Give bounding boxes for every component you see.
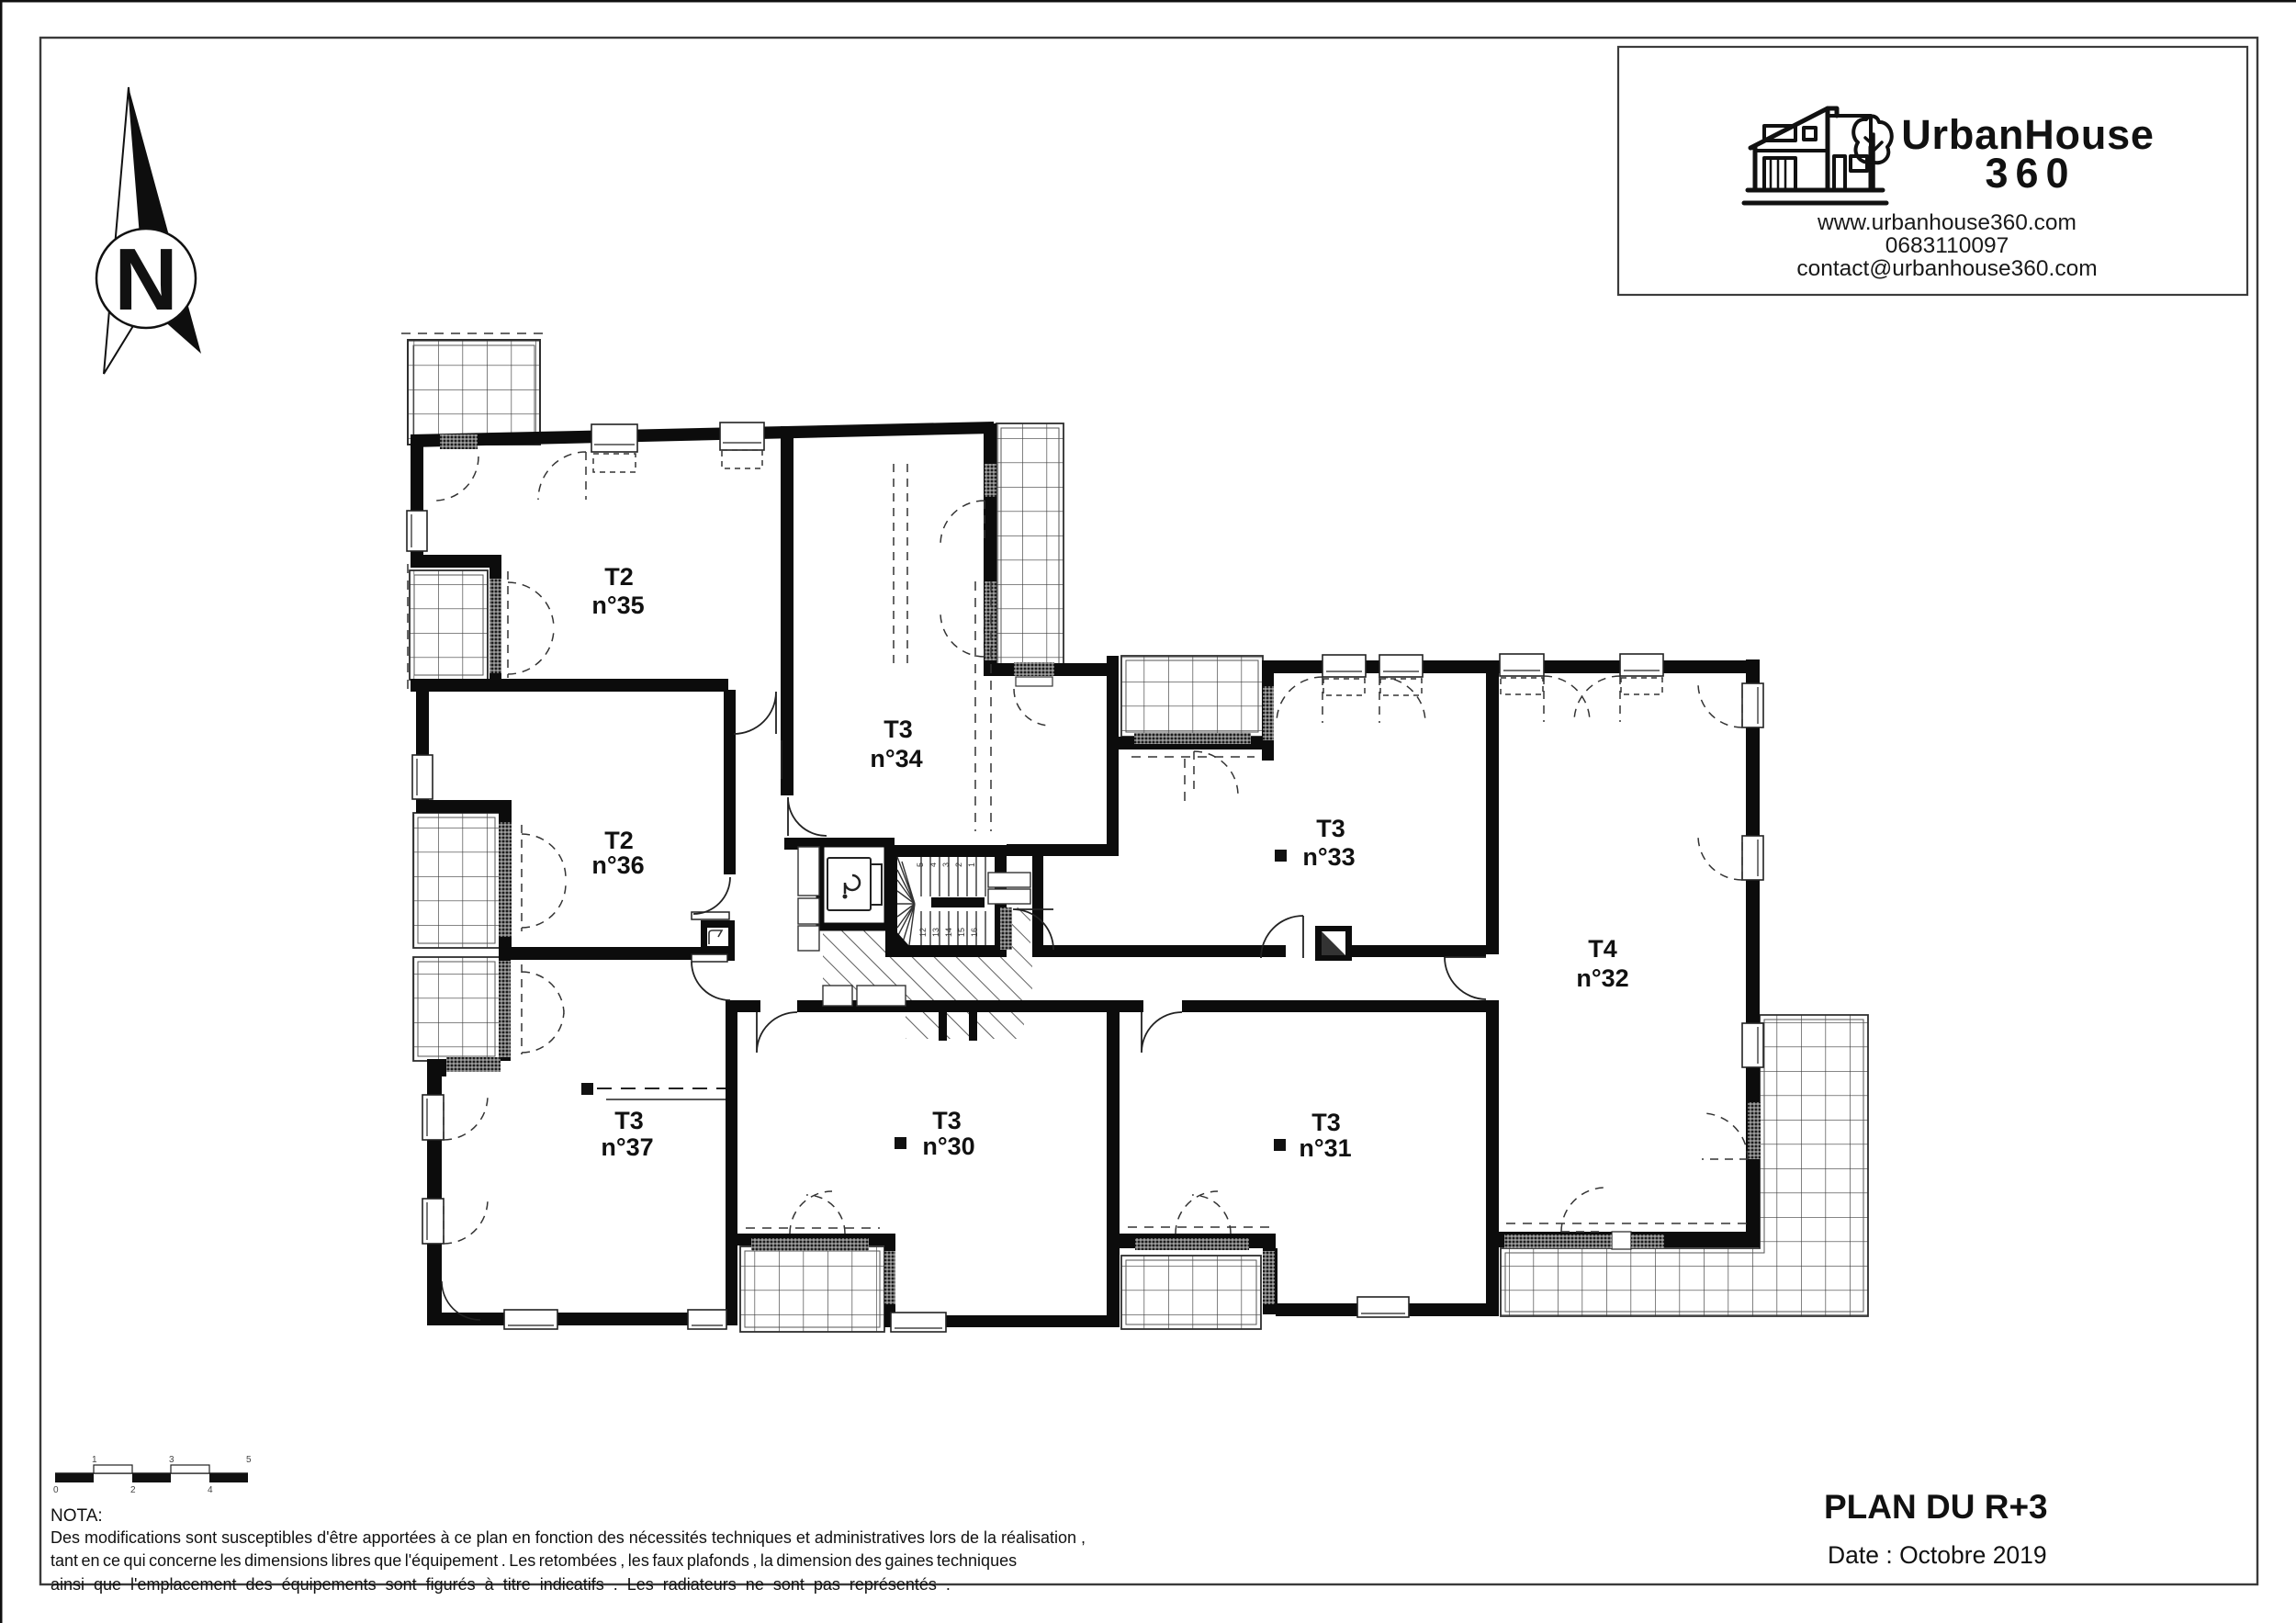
svg-text:n°36: n°36 xyxy=(591,851,644,879)
svg-text:16: 16 xyxy=(970,928,979,937)
svg-text:n°30: n°30 xyxy=(922,1133,974,1160)
svg-text:T3: T3 xyxy=(1311,1109,1341,1136)
svg-text:www.urbanhouse360.com: www.urbanhouse360.com xyxy=(1817,210,2077,235)
svg-text:3: 3 xyxy=(941,862,951,867)
svg-text:contact@urbanhouse360.com: contact@urbanhouse360.com xyxy=(1796,256,2097,281)
svg-text:n°35: n°35 xyxy=(591,592,644,619)
svg-text:NOTA:: NOTA: xyxy=(51,1506,103,1526)
svg-text:360: 360 xyxy=(1985,150,2076,197)
svg-text:tant en ce qui concerne les di: tant en ce qui concerne les dimensions l… xyxy=(51,1551,1017,1570)
svg-text:5: 5 xyxy=(916,862,925,867)
svg-text:T3: T3 xyxy=(614,1107,644,1134)
svg-text:2: 2 xyxy=(954,862,963,867)
svg-text:2: 2 xyxy=(130,1485,136,1495)
svg-text:1: 1 xyxy=(967,862,976,867)
svg-text:N: N xyxy=(114,231,177,329)
svg-text:T2: T2 xyxy=(604,827,634,854)
svg-text:Date : Octobre 2019: Date : Octobre 2019 xyxy=(1828,1541,2047,1569)
svg-text:n°31: n°31 xyxy=(1299,1134,1351,1162)
svg-text:14: 14 xyxy=(944,928,953,937)
svg-text:n°32: n°32 xyxy=(1576,964,1628,992)
svg-text:15: 15 xyxy=(957,928,966,937)
svg-text:T3: T3 xyxy=(1316,815,1345,842)
svg-text:n°37: n°37 xyxy=(601,1133,653,1161)
svg-text:n°33: n°33 xyxy=(1302,843,1355,871)
svg-text:12: 12 xyxy=(918,928,928,937)
svg-text:0683110097: 0683110097 xyxy=(1885,233,2009,258)
svg-text:PLAN DU R+3: PLAN DU R+3 xyxy=(1824,1488,2048,1526)
svg-text:0: 0 xyxy=(53,1485,59,1495)
svg-text:4: 4 xyxy=(929,862,938,867)
svg-text:13: 13 xyxy=(931,928,940,937)
svg-text:4: 4 xyxy=(208,1485,213,1495)
svg-text:T4: T4 xyxy=(1588,935,1617,963)
svg-text:T3: T3 xyxy=(932,1107,962,1134)
svg-text:T2: T2 xyxy=(604,563,634,591)
svg-text:ainsi que l'emplacement des éq: ainsi que l'emplacement des équipements … xyxy=(51,1575,951,1594)
svg-text:3: 3 xyxy=(169,1455,174,1465)
svg-text:5: 5 xyxy=(246,1455,252,1465)
svg-text:T3: T3 xyxy=(884,716,913,743)
svg-text:1: 1 xyxy=(92,1455,97,1465)
svg-text:Des modifications sont suscept: Des modifications sont susceptibles d'êt… xyxy=(51,1528,1086,1547)
svg-text:n°34: n°34 xyxy=(870,745,922,772)
